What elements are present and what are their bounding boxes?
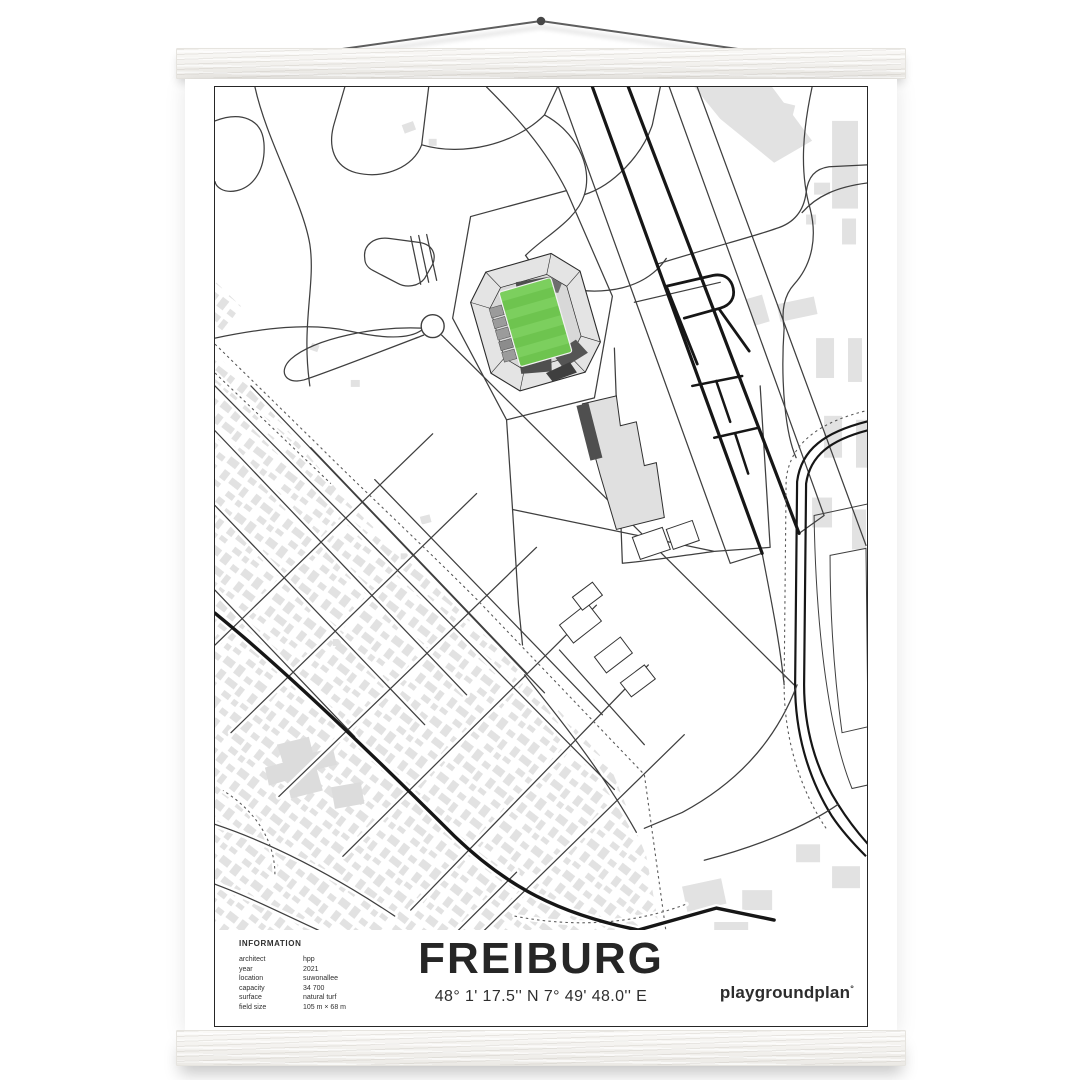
info-value: 2021: [303, 965, 319, 975]
info-label: location: [239, 974, 303, 984]
taxiway-r-mark: [666, 275, 749, 364]
brand-text: playgroundplan: [720, 983, 850, 1002]
info-label: year: [239, 965, 303, 975]
brand-mark: °: [850, 983, 854, 993]
info-value: 105 m × 68 m: [303, 1003, 346, 1013]
info-value: natural turf: [303, 993, 336, 1003]
info-row: architect hpp: [239, 955, 346, 965]
brand-logo: playgroundplan°: [720, 983, 854, 1003]
info-heading: INFORMATION: [239, 939, 346, 948]
info-label: field size: [239, 1003, 303, 1013]
map-frame: INFORMATION architect hpp year 2021 loca…: [214, 86, 868, 1027]
info-label: surface: [239, 993, 303, 1003]
info-value: suwonallee: [303, 974, 338, 984]
top-hanger-bar: [176, 48, 906, 79]
info-row: year 2021: [239, 965, 346, 975]
info-row: surface natural turf: [239, 993, 346, 1003]
info-label: architect: [239, 955, 303, 965]
bottom-hanger-bar: [176, 1030, 906, 1066]
info-label: capacity: [239, 984, 303, 994]
highway: [644, 410, 867, 860]
poster: INFORMATION architect hpp year 2021 loca…: [185, 79, 897, 1032]
info-row: field size 105 m × 68 m: [239, 1003, 346, 1013]
coordinates: 48° 1' 17.5'' N 7° 49' 48.0'' E: [418, 988, 664, 1006]
info-block: INFORMATION architect hpp year 2021 loca…: [239, 939, 346, 1013]
map-svg: [215, 87, 867, 930]
hall-building: [576, 396, 664, 530]
info-row: capacity 34 700: [239, 984, 346, 994]
info-row: location suwonallee: [239, 974, 346, 984]
info-value: hpp: [303, 955, 315, 965]
roundabout: [421, 315, 444, 338]
info-value: 34 700: [303, 984, 324, 994]
poster-title: FREIBURG: [418, 936, 664, 982]
stadium: [464, 247, 608, 397]
product-photo: INFORMATION architect hpp year 2021 loca…: [0, 0, 1080, 1080]
cord-knot: [537, 17, 546, 26]
poster-caption: INFORMATION architect hpp year 2021 loca…: [215, 930, 867, 1024]
city-map: [215, 87, 867, 930]
title-block: FREIBURG 48° 1' 17.5'' N 7° 49' 48.0'' E: [418, 936, 664, 1006]
